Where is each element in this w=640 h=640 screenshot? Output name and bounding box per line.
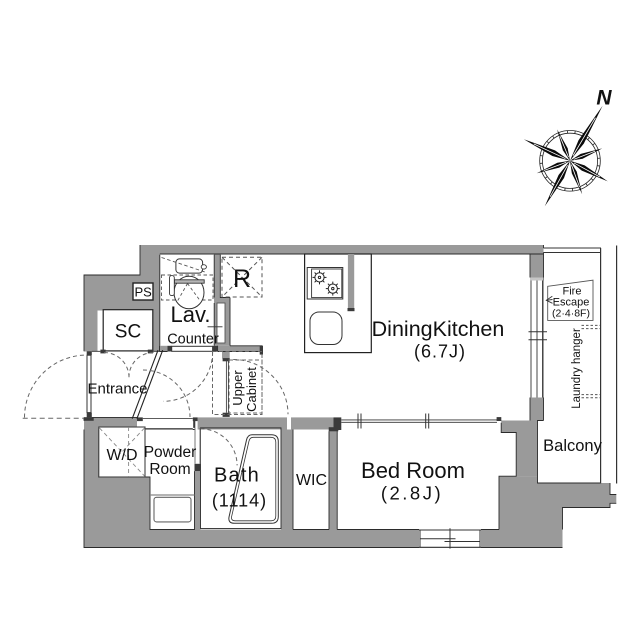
svg-text:Bed Room: Bed Room xyxy=(361,458,465,483)
svg-text:WIC: WIC xyxy=(296,472,327,489)
svg-text:(2·4·8F): (2·4·8F) xyxy=(552,308,590,320)
svg-text:N: N xyxy=(596,87,612,110)
svg-text:(6.7J): (6.7J) xyxy=(414,342,466,362)
svg-text:Lav.: Lav. xyxy=(171,302,211,327)
svg-text:(2.8J): (2.8J) xyxy=(381,483,443,504)
svg-text:Cabinet: Cabinet xyxy=(244,367,259,412)
svg-text:W/D: W/D xyxy=(106,447,137,464)
svg-text:Powder: Powder xyxy=(144,444,197,461)
svg-text:R: R xyxy=(233,265,251,293)
svg-text:Entrance: Entrance xyxy=(87,381,147,398)
svg-text:(1114): (1114) xyxy=(212,491,267,511)
svg-text:Balcony: Balcony xyxy=(543,437,602,455)
svg-text:Laundry hanger: Laundry hanger xyxy=(571,328,583,409)
svg-text:Upper: Upper xyxy=(230,370,245,406)
svg-text:DiningKitchen: DiningKitchen xyxy=(372,317,505,341)
svg-text:SC: SC xyxy=(115,322,141,343)
svg-text:Bath: Bath xyxy=(214,465,260,487)
svg-text:Counter: Counter xyxy=(167,332,219,348)
svg-text:PS: PS xyxy=(135,285,153,300)
svg-text:Room: Room xyxy=(149,461,190,478)
